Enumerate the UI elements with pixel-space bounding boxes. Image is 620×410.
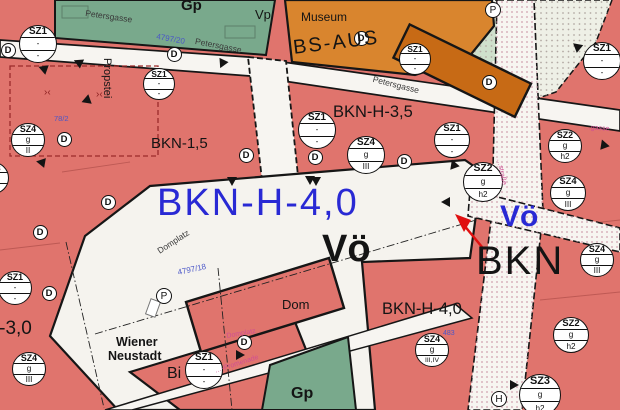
parking-badge-p: P [485,2,501,18]
density-badge-d: D [42,286,57,301]
zone-circle-sz4: SZ4gIII [12,352,46,386]
map-label-museum: Museum [301,11,347,23]
zone-circle-sz3: SZ3gh2 [519,374,561,410]
density-badge-d: D [1,43,16,58]
zone-circle-sz4: SZ4gIII [550,175,586,211]
zone-circle-sz1: SZ1-- [143,68,175,100]
parking-badge-p: P [156,288,172,304]
map-label-parcel-483: 483 [443,330,455,337]
map-label-bkn-h-30: BKN-H-3,0 [0,319,32,338]
zone-circle-sz4: SZ4gIII [347,136,385,174]
zone-circle-detail: - [20,37,56,49]
zone-circle-sz1: SZ1-- [298,111,336,149]
stop-badge-h: H [491,391,507,407]
density-badge-d: D [239,148,254,163]
map-label-voe-black: Vö [322,230,371,268]
zone-circle-detail: - [0,282,31,293]
zone-circle-sz4: SZ4gIII,IV [415,333,449,367]
zone-circle-sz1: SZ1-- [399,43,431,75]
map-label-voe-blue: Vö [500,202,538,232]
zone-circle-detail: g [464,175,502,188]
density-badge-d: D [33,225,48,240]
map-label-bkn-h-35: BKN-H-3,5 [333,104,413,121]
zone-circle-detail: g [0,172,8,182]
density-badge-d: D [101,195,116,210]
zone-circle-detail: - [584,54,620,66]
zone-circle-detail: g [348,148,384,160]
zone-circle-sz4: SZ4gIII [580,243,614,277]
zone-circle-sz1: SZ1-- [434,122,470,158]
map-label-mark-a: ›‹ [44,88,51,98]
zone-circle-detail: g [12,134,44,145]
zone-circle-sz2: SZ2gh2 [553,317,589,353]
zone-circle-sz4: SZ4gII [11,123,45,157]
density-badge-d: D [482,75,497,90]
map-label-wiener: Wiener [116,336,158,349]
zone-circle-detail: - [299,123,335,135]
map-label-bi: Bi [167,366,181,382]
map-label-dom: Dom [282,298,309,311]
zone-circle-detail: g [13,363,45,374]
zone-circle-detail: - [400,53,430,63]
zone-circle-sz1: SZ1-- [583,42,620,80]
zone-circle-detail: h2 [520,401,560,410]
zone-circle-detail: g [551,187,585,199]
map-label-bkn-h-40-black: BKN-H-4,0 [382,301,462,318]
density-badge-d: D [167,47,182,62]
map-label-vp: Vp [255,8,271,21]
zone-circle-sz2: SZ2gh2 [548,129,582,163]
zone-circle-detail: g [554,329,588,341]
map-label-mark-b: ›‹ [96,90,103,100]
map-label-parcel-78-2: 78/2 [54,115,69,123]
density-badge-d: D [308,150,323,165]
zone-circle-detail: g [416,344,448,355]
zone-circle-detail: - [144,78,174,88]
zoning-map: GpVpMuseumBS-AUSPetersgasse4797/20Peters… [0,0,620,410]
density-badge-d: D [57,132,72,147]
map-label-gp-bottom: Gp [291,386,313,402]
map-label-gp-top: Gp [181,0,202,13]
zone-circle-sz1: SZ1-- [19,25,57,63]
zone-circle-detail: g [581,254,613,265]
zone-circle-detail: - [435,134,469,146]
density-badge-d: D [397,154,412,169]
map-label-bkn-15: BKN-1,5 [151,136,208,151]
map-label-bkn-black: BKN [476,241,564,281]
map-label-bkn-h-40-blue: BKN-H-4,0 [157,184,359,222]
map-label-neustadt: Neustadt [108,350,161,363]
zone-circle-detail: g [549,140,581,151]
zone-circle-detail: g [520,388,560,402]
